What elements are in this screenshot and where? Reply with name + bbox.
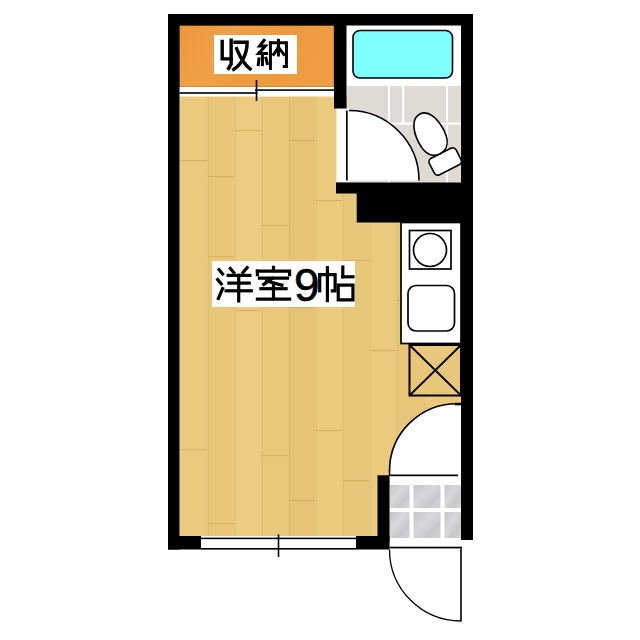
svg-text:9: 9	[294, 259, 320, 311]
